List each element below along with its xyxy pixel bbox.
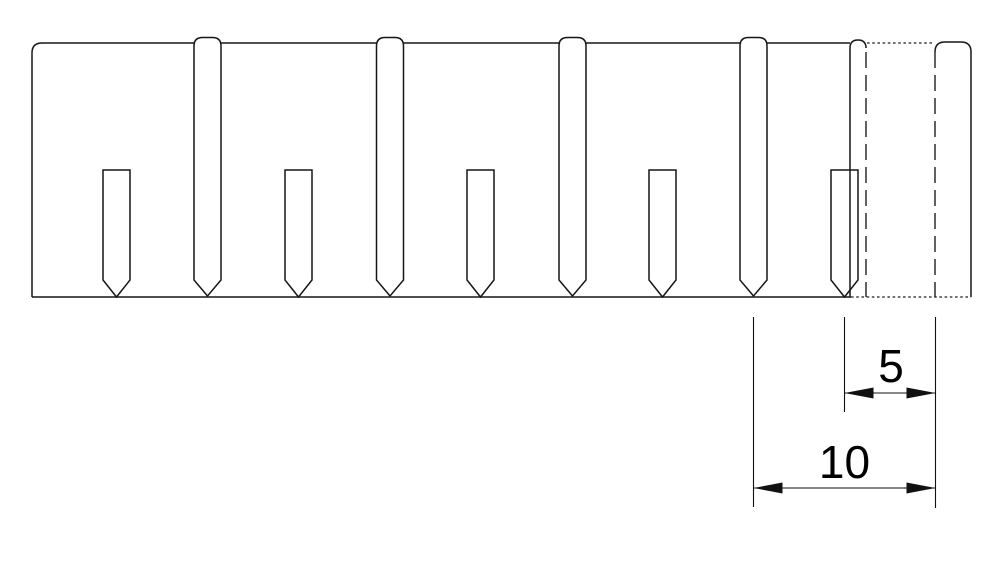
short-slot <box>103 170 130 297</box>
technical-drawing-svg: 510 <box>0 0 988 571</box>
long-slot <box>194 38 221 297</box>
long-slot <box>740 38 767 297</box>
part-outline <box>32 43 851 297</box>
long-slot <box>559 38 586 297</box>
dimension-arrow-right <box>907 483 936 494</box>
end-tab-outline <box>935 42 971 297</box>
drawing-canvas: 510 <box>0 0 988 571</box>
dimension-arrow-right <box>907 388 936 399</box>
short-slot <box>467 170 494 297</box>
dimension-label: 5 <box>878 340 904 392</box>
hidden-lines-layer <box>851 43 971 297</box>
dimension-layer: 510 <box>754 317 936 508</box>
dimension-label: 10 <box>819 436 870 488</box>
long-slot <box>377 38 404 297</box>
short-slot <box>831 170 858 297</box>
short-slot <box>285 170 312 297</box>
short-slot <box>649 170 676 297</box>
part-geometry-layer <box>32 38 971 298</box>
dimension-arrow-left <box>845 388 874 399</box>
dimension-arrow-left <box>754 483 783 494</box>
